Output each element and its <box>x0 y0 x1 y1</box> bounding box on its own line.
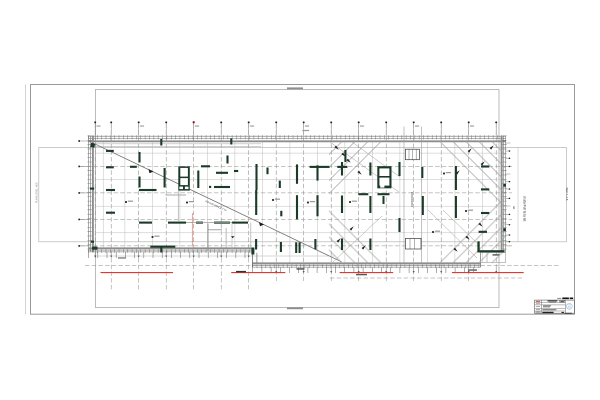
svg-text:CORRIDOR: CORRIDOR <box>410 192 414 207</box>
svg-text:st ata Full ta ta tat: st ata Full ta ta tat <box>523 196 527 221</box>
svg-text:PLAN LEVEL +6.0: PLAN LEVEL +6.0 <box>36 182 39 203</box>
svg-text:tat: tat <box>512 206 516 209</box>
svg-text:SEC 1-1 A: SEC 1-1 A <box>565 188 569 201</box>
